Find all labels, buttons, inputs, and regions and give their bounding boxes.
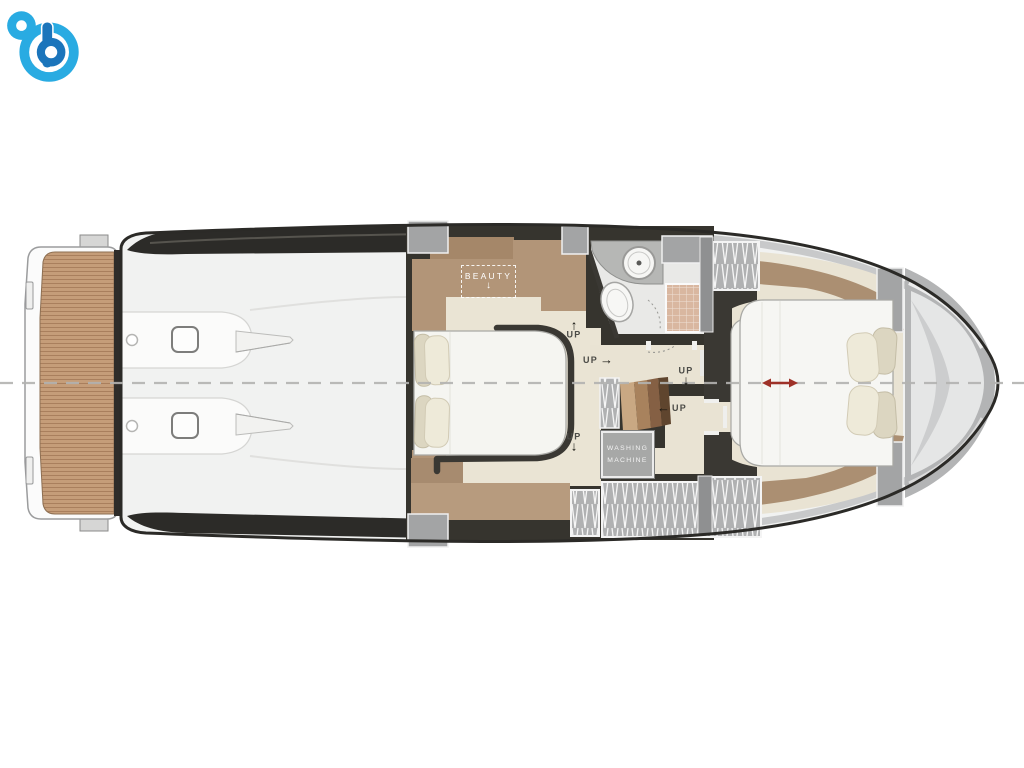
cleat-top (26, 282, 33, 309)
engine-mount-circle (127, 421, 138, 432)
brand-b-logo (0, 0, 92, 90)
locker (602, 482, 711, 537)
floorplan-drawing (0, 0, 1024, 768)
pillows-bottom (414, 395, 450, 448)
engine-hatch (172, 413, 198, 438)
sink-drain (637, 261, 642, 266)
locker-hatched (600, 378, 619, 428)
engine-hatch (172, 327, 198, 352)
cleat-bottom (26, 457, 33, 484)
pillows-top (414, 333, 450, 386)
shower (666, 284, 700, 332)
locker (713, 242, 759, 290)
locker (571, 490, 599, 536)
yacht-floorplan-page: BEAUTY ↓ WASHING MACHINE ↑ UP UP → UP ↓ … (0, 0, 1024, 768)
bulkhead (562, 226, 588, 254)
master-door-opening (704, 402, 732, 432)
platform-support-top (80, 235, 108, 248)
mid-cabin (411, 237, 601, 520)
platform-support-bottom (80, 518, 108, 531)
pillow (846, 385, 880, 436)
landing-strip (653, 448, 712, 474)
pillow (846, 332, 880, 383)
bulkhead (698, 476, 712, 534)
engine-mount-circle (127, 335, 138, 346)
bulkhead (700, 237, 713, 332)
